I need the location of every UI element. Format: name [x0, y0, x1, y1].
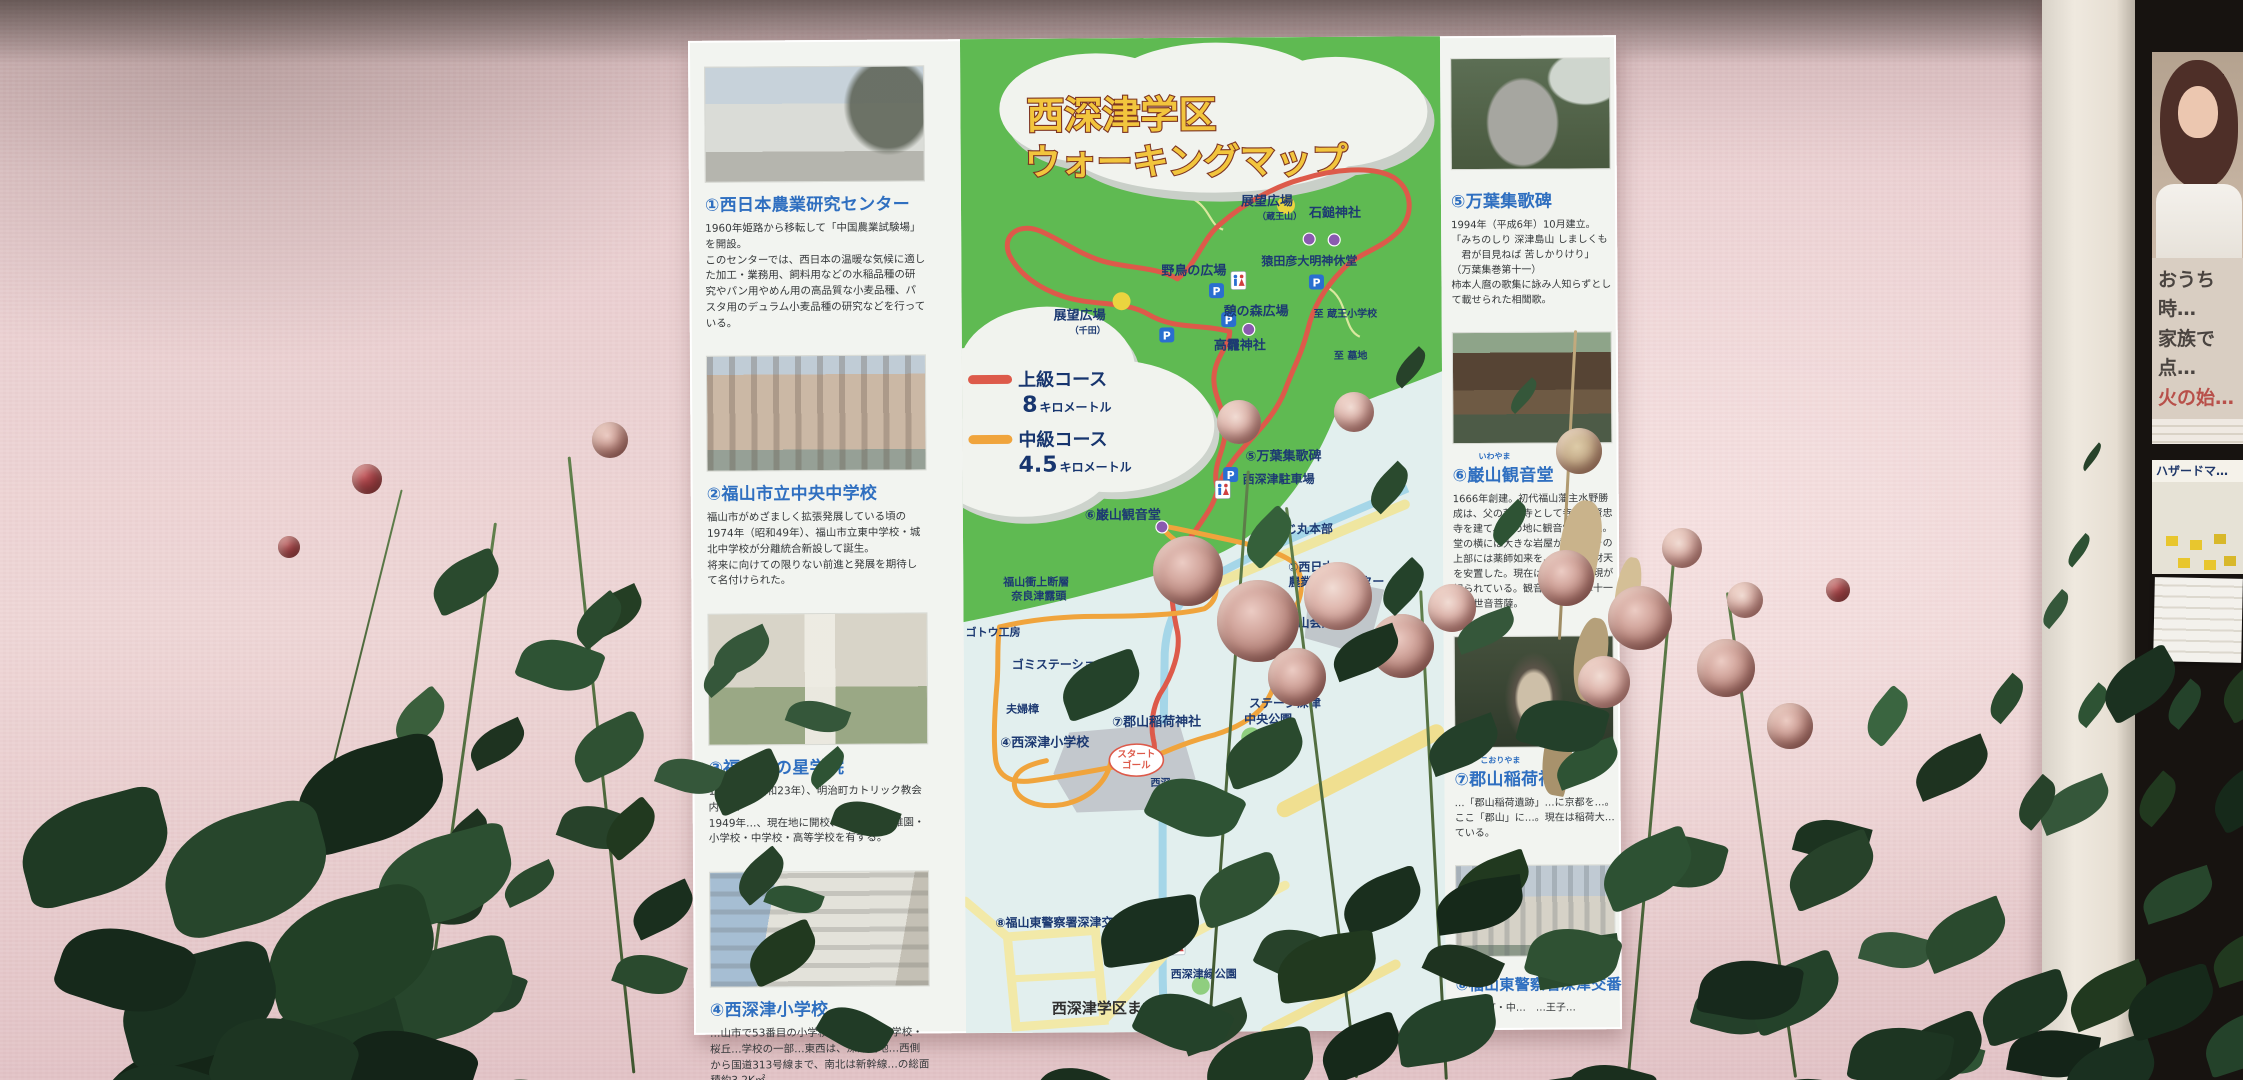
- map-label: 展望広場: [1054, 307, 1106, 323]
- poi-card: ②福山市立中央中学校 福山市がめざましく拡張発展している頃の1974年（昭和49…: [706, 355, 927, 590]
- poi-desc: …「郡山稲荷遺跡」…に京都を…。ここ「郡山」に…。現在は稲荷大…ている。: [1455, 795, 1615, 841]
- poi-title: 西日本農業研究センター: [720, 194, 910, 215]
- fire-safety-poster: おうち時… 家族で点… 火の始…: [2152, 52, 2243, 444]
- poi-title: 福山市立中央中学校: [721, 484, 877, 505]
- rose-flower: [1578, 656, 1630, 708]
- map-label: 中央公園: [1244, 711, 1292, 726]
- poi-number: ⑧: [1456, 976, 1469, 994]
- poster-woman-face: [2178, 86, 2218, 138]
- map-label: （蔵王山）: [1257, 210, 1302, 222]
- poi-card: ④西深津小学校 …山市で53番目の小学校…学校・東小学校・桜丘…学校の一部…東西…: [709, 870, 930, 1080]
- poi-photo: [1452, 331, 1613, 444]
- rose-flower: [1608, 586, 1672, 650]
- rose-flower: [1428, 584, 1476, 632]
- poi-number: ⑤: [1451, 192, 1466, 212]
- svg-text:スタート: スタート: [1117, 748, 1155, 760]
- map-label: ゴトウ工房: [966, 625, 1021, 639]
- map-label: 至 蔵王小学校: [1314, 307, 1379, 320]
- rose-flower: [1268, 648, 1326, 706]
- poi-photo: [706, 355, 927, 472]
- map-label: ⑤万葉集歌碑: [1245, 448, 1321, 464]
- dried-rose: [1556, 428, 1602, 474]
- walking-map-sign: ①西日本農業研究センター 1960年姫路から移転して「中国農業試験場」を開設。 …: [688, 35, 1622, 1035]
- poi-number: ⑦: [1454, 770, 1469, 790]
- poster-text: おうち時… 家族で点… 火の始…: [2152, 258, 2243, 413]
- map-label: ④西深津小学校: [1000, 734, 1090, 751]
- poi-photo: [704, 65, 925, 182]
- poi-number: ④: [710, 1001, 725, 1021]
- rose-flower: [1217, 400, 1261, 444]
- sign-footer: 西深津学区まちづくり…: [1052, 999, 1217, 1018]
- rose-flower: [1304, 562, 1372, 630]
- hazard-map-label: ハザードマ…: [2152, 460, 2243, 482]
- map-label: 野鳥の広場: [1161, 263, 1226, 279]
- map-label: 猿田彦大明神休堂: [1260, 253, 1357, 269]
- wall-pillar: [2042, 0, 2135, 1080]
- poi-photo: [1450, 57, 1611, 170]
- poi-photo: [709, 870, 930, 987]
- map-label: 石鎚神社: [1308, 205, 1361, 221]
- sign-left-column: ①西日本農業研究センター 1960年姫路から移転して「中国農業試験場」を開設。 …: [688, 39, 967, 1080]
- poster-woman-photo: [2152, 52, 2243, 258]
- poi-title: 福山暁の星学院: [723, 758, 844, 779]
- poi-number: ⑥: [1453, 466, 1468, 486]
- poi-photo: [1455, 864, 1616, 957]
- sign-title-line1: 西深津学区: [1026, 93, 1216, 138]
- map-label: 展望広場: [1241, 193, 1293, 209]
- poi-title: 郡山稲荷神社: [1469, 769, 1573, 790]
- map-label: 福山衝上断層: [1002, 575, 1069, 589]
- rose-flower: [1153, 536, 1223, 606]
- map-label: 西深津緑公園: [1171, 967, 1237, 981]
- rose-flower: [1334, 392, 1374, 432]
- poster-woman-blouse: [2156, 184, 2242, 258]
- intermediate-course-label: 中級コース: [1018, 428, 1107, 451]
- rose-flower: [1697, 639, 1755, 697]
- map-label: 西深津駐車場: [1243, 471, 1315, 486]
- rose-flower: [592, 422, 628, 458]
- rose-flower: [1662, 528, 1702, 568]
- map-label: 至 墓地: [1334, 349, 1368, 362]
- rose-flower: [278, 536, 300, 558]
- map-label: 奈良津露頭: [1010, 589, 1067, 603]
- poster-fine-print: [2152, 419, 2243, 444]
- poi-card: ⑧福山東警察署深津交番 西深津町・中… …王子…: [1455, 864, 1616, 1016]
- svg-text:ゴール: ゴール: [1122, 759, 1151, 771]
- intermediate-course-swatch: [968, 435, 1012, 444]
- poi-title: 西深津小学校: [725, 1000, 829, 1021]
- rose-flower: [1370, 614, 1434, 678]
- poi-card: ⑤万葉集歌碑 1994年（平成6年）10月建立。 「みちのしり 深津島山 しまし…: [1450, 57, 1612, 308]
- map-label: 高龗神社: [1214, 337, 1266, 353]
- map-label: 夫婦樟: [1006, 702, 1039, 716]
- advanced-course-label: 上級コース: [1018, 368, 1107, 391]
- poster-line: 家族で点…: [2158, 325, 2239, 384]
- poi-title: 万葉集歌碑: [1466, 192, 1553, 213]
- map-label: （千田）: [1070, 324, 1106, 336]
- poi-card: ①西日本農業研究センター 1960年姫路から移転して「中国農業試験場」を開設。 …: [704, 65, 926, 332]
- poster-line: おうち時…: [2158, 266, 2239, 325]
- poi-title: 巌山観音堂: [1467, 466, 1554, 487]
- park-area: [1241, 727, 1261, 747]
- photo-scene: おうち時… 家族で点… 火の始… ハザードマ… ①西日本農業研究センター 196…: [0, 0, 2243, 1080]
- walking-map: P: [960, 36, 1446, 1033]
- poi-title: 福山東警察署深津交番: [1469, 975, 1622, 994]
- map-label: ⑦郡山稲荷神社: [1112, 714, 1201, 731]
- rose-flower: [1767, 703, 1813, 749]
- poi-desc: 1994年（平成6年）10月建立。 「みちのしり 深津島山 しましくも 君が目見…: [1451, 217, 1612, 308]
- poi-number: ①: [705, 196, 720, 216]
- hazard-map-markers: [2166, 536, 2178, 546]
- rose-flower: [1727, 582, 1763, 618]
- poi-desc: 1948年（昭和23年）、明治町カトリック教会内に… 1949年…、現在地に開校…: [709, 783, 929, 847]
- poi-number: ③: [708, 759, 723, 779]
- poi-number: ②: [707, 485, 722, 505]
- advanced-course-swatch: [968, 375, 1012, 384]
- viewpoint-dot: [1113, 292, 1131, 310]
- start-goal-badge: スタート ゴール: [1109, 744, 1163, 776]
- rose-flower: [1538, 550, 1594, 606]
- poi-card: ③福山暁の星学院 1948年（昭和23年）、明治町カトリック教会内に… 1949…: [707, 612, 928, 847]
- poi-desc: 1960年姫路から移転して「中国農業試験場」を開設。 このセンターでは、西日本の…: [705, 220, 926, 332]
- poster-line: 火の始…: [2158, 384, 2239, 413]
- map-label: 憩の森広場: [1224, 303, 1289, 319]
- poi-desc: 福山市がめざましく拡張発展している頃の1974年（昭和49年）、福山市立東中学校…: [707, 510, 927, 590]
- map-label: ⑥巌山観音堂: [1085, 507, 1161, 523]
- poi-desc: 西深津町・中… …王子…: [1456, 1000, 1616, 1016]
- poi-photo: [707, 612, 928, 745]
- hazard-map-sheet: [2152, 482, 2243, 574]
- rose-flower: [1826, 578, 1850, 602]
- rose-flower: [352, 464, 382, 494]
